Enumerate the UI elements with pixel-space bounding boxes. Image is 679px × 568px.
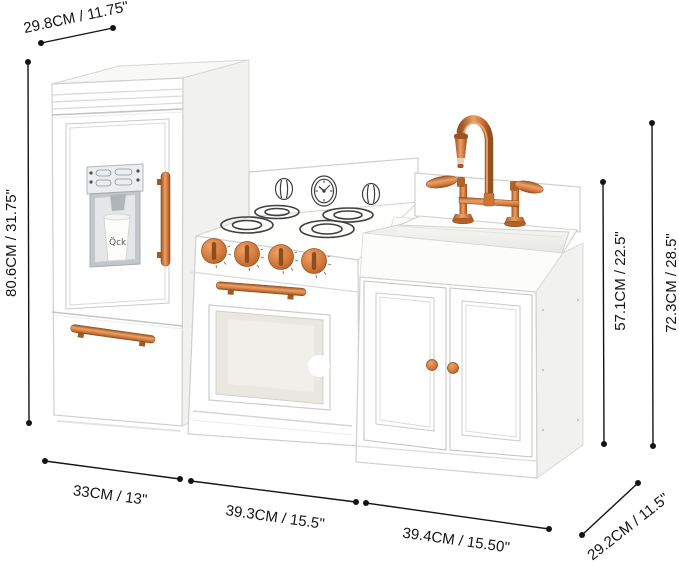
cabinet-door-left xyxy=(364,281,446,450)
cup-doodle-text: Q̈ck xyxy=(109,236,127,248)
dimension-label: 72.3CM / 28.5" xyxy=(663,233,679,333)
faucet-tee xyxy=(484,193,494,206)
dimension-label: 39.3CM / 15.5" xyxy=(225,502,326,533)
faucet-spray-head xyxy=(454,134,468,168)
dimension-fridge-height: 80.6CM / 31.75" xyxy=(3,59,32,426)
dimension-sink-width: 39.4CM / 15.50" xyxy=(363,500,552,556)
dispenser-spout xyxy=(110,194,126,211)
cabinet-door-knob xyxy=(448,363,459,374)
product-dimension-diagram: Q̈ck xyxy=(0,0,679,568)
dimension-label: 39.4CM / 15.50" xyxy=(401,525,510,557)
dimension-label: 29.8CM / 11.75" xyxy=(22,0,130,37)
dimension-label: 57.1CM / 22.5" xyxy=(612,231,629,331)
faucet-foot-right xyxy=(504,217,526,227)
dimension-fridge-width: 33CM / 13" xyxy=(42,458,183,509)
dimension-total-height: 72.3CM / 28.5" xyxy=(649,120,679,449)
dispenser-cup: Q̈ck xyxy=(104,214,130,261)
oven-interior-hole xyxy=(308,355,330,377)
dimension-sink-height: 57.1CM / 22.5" xyxy=(600,179,629,447)
play-kitchen-illustration: Q̈ck xyxy=(0,0,679,568)
oven-interior-back-wall xyxy=(228,319,314,392)
dimension-top-depth: 29.8CM / 11.75" xyxy=(22,0,130,46)
faucet-foot-left xyxy=(452,214,474,224)
dispenser-button-panel xyxy=(87,164,143,194)
dimension-label: 80.6CM / 31.75" xyxy=(3,189,20,297)
dimension-base-depth: 29.2CM / 11.5" xyxy=(579,480,672,564)
cabinet-door-knob xyxy=(427,360,438,371)
cabinet-door-right xyxy=(448,288,533,457)
dimension-stove-width: 39.3CM / 15.5" xyxy=(188,478,359,533)
ice-dispenser: Q̈ck xyxy=(87,164,143,267)
dimension-label: 29.2CM / 11.5" xyxy=(584,490,672,564)
dimension-label: 33CM / 13" xyxy=(72,482,148,509)
